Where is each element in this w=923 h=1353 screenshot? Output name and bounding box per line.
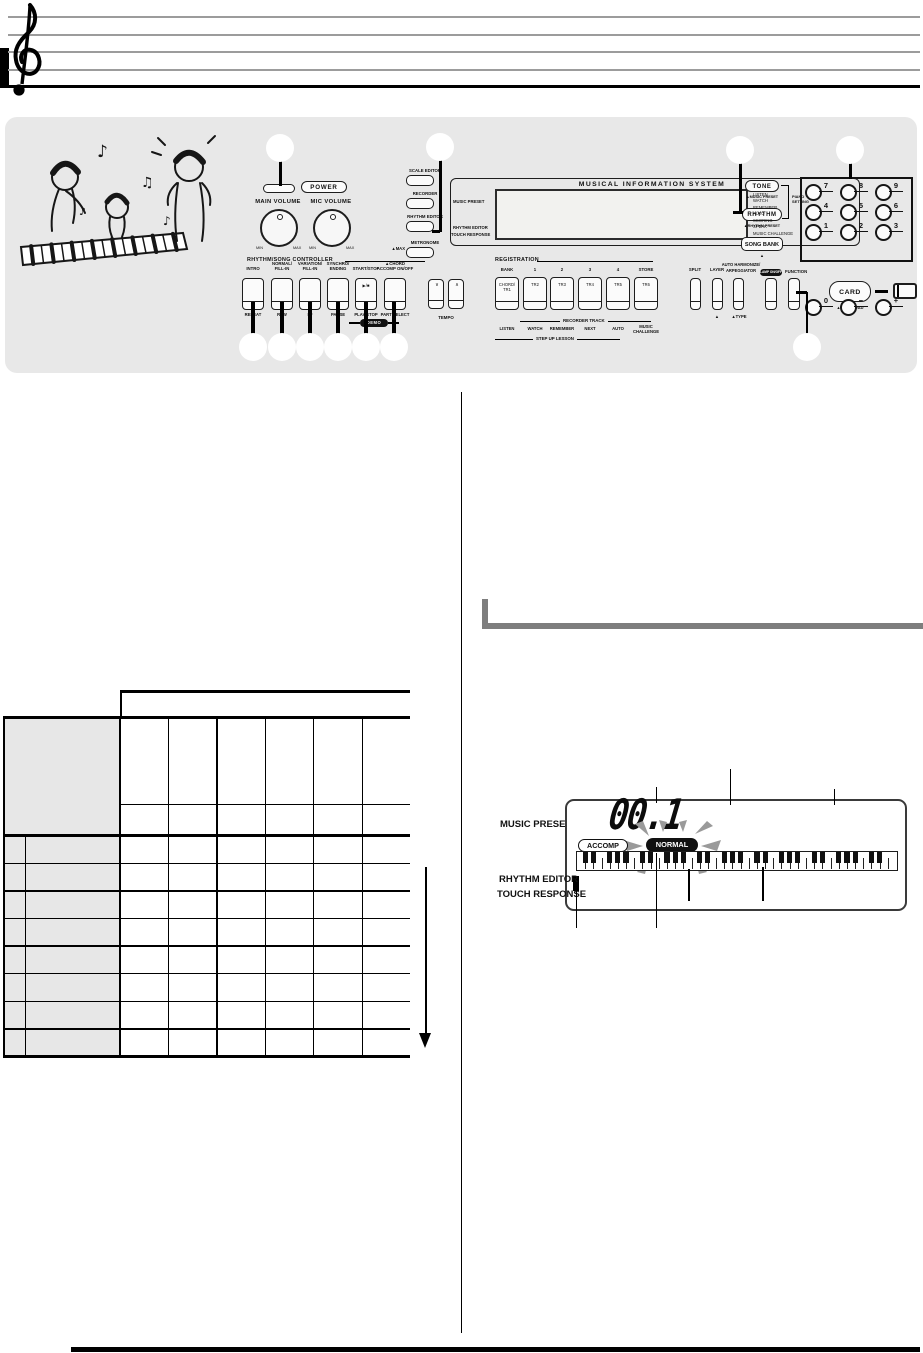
mic-volume-max: MAX bbox=[346, 246, 354, 250]
callout-line bbox=[308, 302, 311, 334]
callout-line bbox=[364, 302, 367, 334]
callout-line bbox=[739, 163, 742, 214]
numpad-key-label: 1 bbox=[819, 222, 833, 232]
side-button-label: RHYTHM EDITOR bbox=[407, 215, 443, 220]
svg-text:♪: ♪ bbox=[79, 205, 86, 218]
song-bank-sub-label: ▲ bbox=[760, 254, 764, 259]
black-key bbox=[754, 852, 759, 863]
manual-page: ♪♫ ♪♪ POWER MAIN VOLUME MIC VOLUME MIN M… bbox=[0, 0, 923, 1353]
white-key-divider bbox=[692, 858, 693, 869]
black-key bbox=[844, 852, 849, 863]
table-line bbox=[265, 717, 266, 1056]
recorder-track-label: RECORDER TRACK bbox=[560, 318, 608, 323]
footer-bar bbox=[71, 1347, 920, 1352]
registration-button-label: TR5 bbox=[607, 283, 629, 288]
rsc-top-label: START/STOP bbox=[353, 267, 380, 272]
step-up-lesson-label: STEP UP LESSON bbox=[533, 336, 577, 341]
callout-circle bbox=[268, 333, 296, 361]
black-key bbox=[869, 852, 874, 863]
lcd-keyboard-graphic bbox=[576, 851, 898, 871]
white-key-divider bbox=[634, 858, 635, 869]
lesson-label: LISTEN bbox=[500, 327, 515, 332]
rsc-top-label: ▲CHORD ACCOMP ON/OFF bbox=[377, 262, 413, 271]
table-line bbox=[120, 690, 122, 717]
registration-button-label: TR6 bbox=[635, 283, 657, 288]
callout-circle bbox=[426, 133, 454, 161]
black-key bbox=[877, 852, 882, 863]
staff-bottom-line bbox=[8, 85, 920, 88]
display-indicator-label: LISTEN bbox=[753, 193, 768, 198]
black-key bbox=[836, 852, 841, 863]
callout-circle bbox=[352, 333, 380, 361]
lcd-screen bbox=[495, 189, 748, 240]
callout-line bbox=[796, 291, 807, 294]
table-line bbox=[3, 1055, 410, 1058]
keyboard-panel-illustration: ♪♫ ♪♪ POWER MAIN VOLUME MIC VOLUME MIN M… bbox=[5, 117, 917, 373]
lamp-on-off-badge: LAMP ON/OFF bbox=[760, 269, 782, 276]
callout-line bbox=[251, 302, 254, 334]
table-line bbox=[3, 945, 410, 946]
mic-volume-label: MIC VOLUME bbox=[310, 199, 351, 206]
table-header-shading bbox=[5, 719, 119, 1055]
callout-line bbox=[280, 302, 283, 334]
numpad-key-label: 4 bbox=[819, 202, 833, 212]
rsc-top-label: SYNCHRO/ ENDING bbox=[327, 262, 350, 271]
song-bank-button-label: SONG BANK bbox=[742, 238, 782, 252]
display-indicator-label: AUTO bbox=[753, 212, 765, 217]
black-key bbox=[673, 852, 678, 863]
main-volume-min: MIN bbox=[256, 246, 263, 250]
tempo-up-glyph: ∧ bbox=[455, 283, 459, 289]
registration-button-5: TR5 bbox=[606, 277, 630, 310]
layer-sub: ▲ bbox=[715, 315, 719, 320]
black-key bbox=[812, 852, 817, 863]
registration-button-6: TR6 bbox=[634, 277, 658, 310]
registration-rule bbox=[537, 261, 653, 262]
callout-line bbox=[392, 302, 395, 334]
callout-circle bbox=[239, 333, 267, 361]
lcd-callout-line bbox=[762, 867, 764, 901]
table-line bbox=[3, 717, 5, 1056]
black-key bbox=[722, 852, 727, 863]
layer-label: LAYER bbox=[710, 268, 724, 273]
lcd-callout-line bbox=[730, 769, 732, 805]
mic-volume-min: MIN bbox=[309, 246, 316, 250]
function-button bbox=[788, 278, 800, 310]
display-indicator-label: MUSIC CHALLENGE bbox=[753, 232, 793, 237]
staff-line bbox=[8, 34, 920, 36]
callout-line bbox=[806, 292, 809, 334]
lesson-label: MUSIC CHALLENGE bbox=[633, 325, 659, 334]
white-key-divider bbox=[659, 858, 660, 869]
registration-button-3: TR3 bbox=[550, 277, 574, 310]
lcd-callout-line bbox=[656, 853, 658, 928]
numpad-key-label: 0 bbox=[819, 297, 833, 307]
callout-line bbox=[733, 211, 743, 214]
table-arrow-line bbox=[425, 867, 427, 1035]
lesson-label: NEXT bbox=[584, 327, 595, 332]
tempo-down-glyph: ∨ bbox=[435, 283, 439, 289]
section-heading-rule bbox=[482, 623, 923, 629]
side-button-label: RECORDER bbox=[413, 192, 438, 197]
black-key bbox=[795, 852, 800, 863]
svg-text:♪: ♪ bbox=[97, 142, 108, 162]
table-line bbox=[168, 717, 169, 1056]
piano-setting-bracket bbox=[788, 185, 789, 219]
callout-circle bbox=[296, 333, 324, 361]
table-line bbox=[3, 863, 410, 864]
registration-top-label: STORE bbox=[639, 268, 654, 273]
callout-line bbox=[279, 161, 282, 186]
display-indicator-label: WATCH bbox=[753, 199, 768, 204]
bezel-music-preset-label: MUSIC PRESET bbox=[453, 200, 484, 205]
lesson-label: AUTO bbox=[612, 327, 624, 332]
registration-title: REGISTRATION bbox=[495, 257, 539, 263]
lcd-touch-response-label: TOUCH RESPONSE bbox=[497, 890, 586, 901]
callout-line bbox=[849, 163, 852, 179]
numpad-key-label: 6 bbox=[889, 202, 903, 212]
callout-circle bbox=[836, 136, 864, 164]
split-label: SPLIT bbox=[689, 268, 701, 273]
staff-line bbox=[8, 16, 920, 18]
callout-circle bbox=[726, 136, 754, 164]
numpad-key-label: 5 bbox=[854, 202, 868, 212]
lcd-rhythm-editor-label: RHYTHM EDITOR bbox=[499, 875, 578, 886]
black-key bbox=[738, 852, 743, 863]
black-key bbox=[787, 852, 792, 863]
table-line bbox=[3, 973, 410, 974]
table-line bbox=[313, 717, 314, 1056]
table-arrow-head bbox=[419, 1033, 431, 1048]
numpad-key-label: 2 bbox=[854, 222, 868, 232]
black-key bbox=[820, 852, 825, 863]
registration-top-label: BANK bbox=[501, 268, 513, 273]
numpad-key-label: − bbox=[854, 297, 868, 307]
rsc-top-label: INTRO bbox=[246, 267, 259, 272]
numpad-key-label: + bbox=[889, 297, 903, 307]
black-key bbox=[607, 852, 612, 863]
callout-circle bbox=[793, 333, 821, 361]
lamp-on-off-button bbox=[765, 278, 777, 310]
svg-text:♫: ♫ bbox=[141, 175, 154, 191]
table-line bbox=[120, 690, 410, 693]
family-illustration: ♪♫ ♪♪ bbox=[13, 125, 258, 300]
power-label: POWER bbox=[302, 182, 346, 194]
main-volume-label: MAIN VOLUME bbox=[255, 199, 301, 206]
white-key-divider bbox=[863, 858, 864, 869]
bezel-rhythm-editor-label: RHYTHM EDITOR bbox=[453, 226, 488, 231]
svg-text:♪: ♪ bbox=[163, 214, 171, 228]
staff-line bbox=[8, 69, 920, 71]
mic-volume-knob-marker bbox=[330, 214, 336, 220]
bezel-touch-response-label: TOUCH RESPONSE bbox=[451, 233, 490, 238]
registration-top-label: 1 bbox=[534, 268, 536, 273]
numpad-key-label: 8 bbox=[854, 182, 868, 192]
black-key bbox=[705, 852, 710, 863]
lcd-callout-line bbox=[656, 787, 658, 803]
numpad-key-label: 7 bbox=[819, 182, 833, 192]
auto-harmonize-sub: ▲TYPE bbox=[731, 315, 746, 320]
table-line bbox=[3, 918, 410, 919]
display-title: MUSICAL INFORMATION SYSTEM bbox=[579, 181, 725, 189]
white-key-divider bbox=[749, 858, 750, 869]
table-line bbox=[3, 1001, 410, 1002]
metronome-note: ▲MAX bbox=[381, 247, 405, 252]
registration-button-label: TR3 bbox=[551, 283, 573, 288]
rsc-top-label: VARIATION/ FILL-IN bbox=[298, 262, 322, 271]
table-line bbox=[3, 716, 410, 719]
registration-button-label: TR2 bbox=[524, 283, 546, 288]
display-indicator-label: SPEAK bbox=[753, 225, 767, 230]
black-key bbox=[583, 852, 588, 863]
side-button-label: METRONOME bbox=[411, 241, 439, 246]
main-volume-max: MAX bbox=[293, 246, 301, 250]
lesson-label: WATCH bbox=[527, 327, 542, 332]
display-indicator-label: SCORING bbox=[753, 219, 773, 224]
table-line bbox=[119, 717, 121, 1056]
white-key-divider bbox=[806, 858, 807, 869]
black-key bbox=[763, 852, 768, 863]
callout-line bbox=[432, 230, 440, 233]
table-line bbox=[3, 890, 410, 891]
black-key bbox=[664, 852, 669, 863]
black-key bbox=[779, 852, 784, 863]
black-key bbox=[623, 852, 628, 863]
registration-button-4: TR4 bbox=[578, 277, 602, 310]
card-dash bbox=[875, 290, 888, 293]
white-key-divider bbox=[602, 858, 603, 869]
rsc-button-glyph: ▶/■ bbox=[356, 283, 376, 288]
piano-setting-bracket bbox=[782, 218, 789, 219]
white-key-divider bbox=[773, 858, 774, 869]
numpad-key-label: 3 bbox=[889, 222, 903, 232]
tempo-down-button: ∨ bbox=[428, 279, 444, 309]
black-key bbox=[648, 852, 653, 863]
layer-button bbox=[712, 278, 723, 310]
callout-circle bbox=[380, 333, 408, 361]
rsc-top-label: NORMAL/ FILL-IN bbox=[272, 262, 292, 271]
tempo-label: TEMPO bbox=[438, 315, 454, 320]
callout-line bbox=[439, 160, 442, 232]
function-label: FUNCTION bbox=[785, 270, 807, 275]
registration-button-label: CHORD/ TR1 bbox=[496, 283, 518, 292]
lesson-label: REMEMBER bbox=[550, 327, 574, 332]
white-key-divider bbox=[831, 858, 832, 869]
lcd-callout-line bbox=[834, 789, 836, 805]
lcd-music-preset-label: MUSIC PRESET bbox=[500, 820, 571, 831]
black-key bbox=[640, 852, 645, 863]
split-button bbox=[690, 278, 701, 310]
table-line bbox=[3, 834, 410, 837]
registration-button-2: TR2 bbox=[523, 277, 547, 310]
black-key bbox=[697, 852, 702, 863]
arpeggiator-label: ARPEGGIATOR bbox=[726, 269, 756, 274]
registration-button-label: TR4 bbox=[579, 283, 601, 288]
black-key bbox=[681, 852, 686, 863]
column-divider bbox=[461, 392, 462, 1333]
side-button bbox=[406, 247, 434, 258]
callout-circle bbox=[266, 134, 294, 162]
side-button-label: SCALE EDITOR bbox=[409, 169, 441, 174]
auto-harmonize-button bbox=[733, 278, 744, 310]
side-button bbox=[406, 221, 434, 232]
black-key bbox=[730, 852, 735, 863]
accomp-indicator-label: ACCOMP bbox=[579, 840, 627, 851]
staff-line bbox=[8, 51, 920, 53]
callout-line bbox=[336, 302, 339, 334]
table-line bbox=[362, 717, 363, 1056]
callout-circle bbox=[324, 333, 352, 361]
tone-button: TONE bbox=[745, 180, 779, 192]
song-bank-button: SONG BANK bbox=[741, 237, 783, 251]
lcd-callout-line bbox=[576, 891, 578, 928]
side-button bbox=[406, 175, 434, 186]
white-key-divider bbox=[716, 858, 717, 869]
treble-clef-icon bbox=[6, 0, 46, 108]
demo-badge-stub bbox=[349, 322, 360, 324]
registration-top-label: 4 bbox=[617, 268, 619, 273]
registration-top-label: 3 bbox=[589, 268, 591, 273]
table-line bbox=[3, 1028, 410, 1029]
white-key-divider bbox=[888, 858, 889, 869]
power-switch-outline: POWER bbox=[301, 181, 347, 193]
normal-indicator-badge: NORMAL bbox=[646, 838, 698, 852]
lcd-callout-line bbox=[688, 869, 690, 901]
table-line bbox=[216, 717, 217, 1056]
registration-button-1: CHORD/ TR1 bbox=[495, 277, 519, 310]
black-key bbox=[853, 852, 858, 863]
display-indicator-label: REMEMBER bbox=[753, 206, 777, 211]
black-key bbox=[591, 852, 596, 863]
main-volume-knob-marker bbox=[277, 214, 283, 220]
tempo-up-button: ∧ bbox=[448, 279, 464, 309]
black-key bbox=[615, 852, 620, 863]
numpad-key-label: 9 bbox=[889, 182, 903, 192]
side-button bbox=[406, 198, 434, 209]
registration-top-label: 2 bbox=[561, 268, 563, 273]
